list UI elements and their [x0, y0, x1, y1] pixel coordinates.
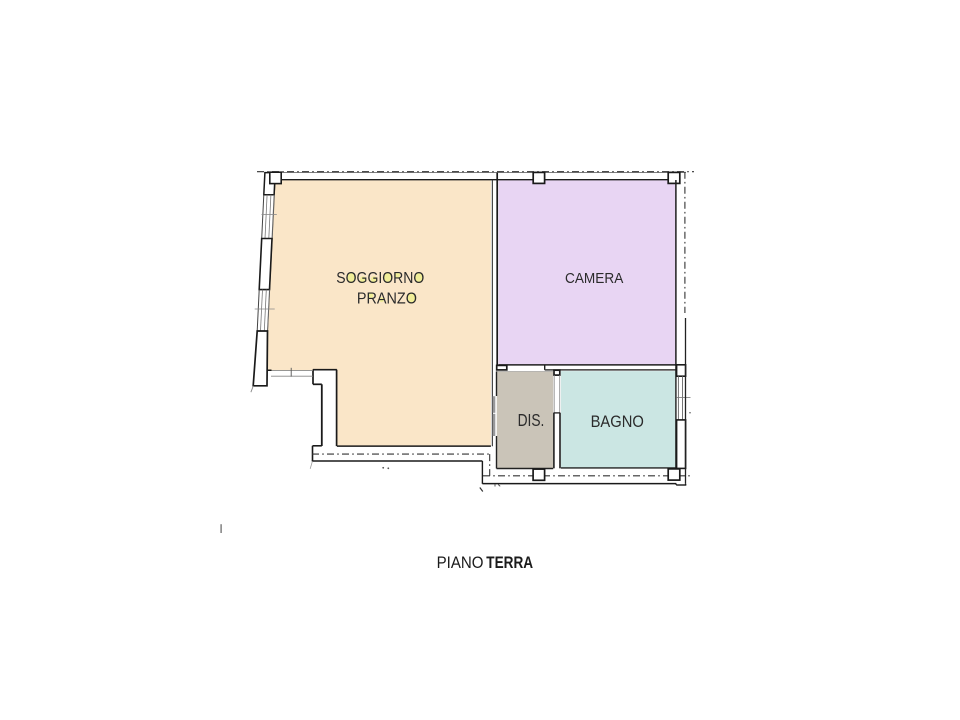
svg-text:SOGGIORNO: SOGGIORNO: [336, 270, 424, 287]
svg-text:DIS.: DIS.: [518, 410, 545, 430]
svg-text:TERRA: TERRA: [486, 553, 533, 572]
svg-text:BAGNO: BAGNO: [591, 413, 644, 431]
svg-text:CAMERA: CAMERA: [565, 271, 624, 287]
svg-text:PIANO: PIANO: [437, 553, 484, 572]
svg-text:PRANZO: PRANZO: [357, 290, 417, 307]
